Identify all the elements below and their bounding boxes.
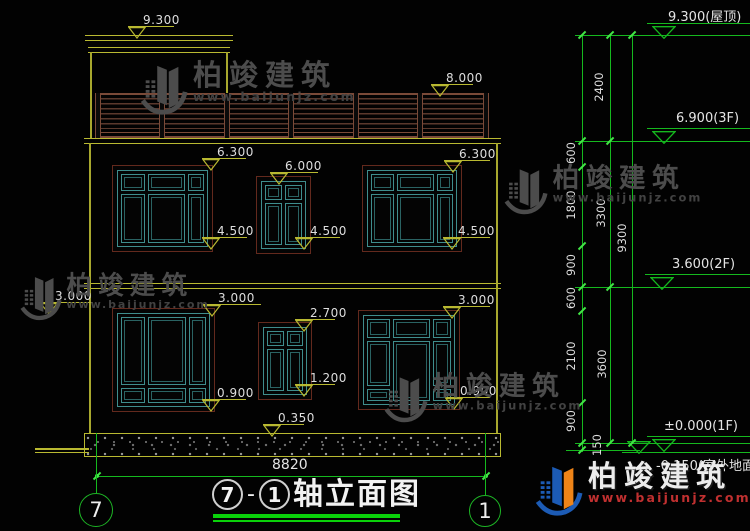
- brand-building-icon: [138, 60, 188, 116]
- window-pane: [188, 194, 204, 243]
- window-pane: [437, 174, 453, 191]
- window-pane: [265, 185, 282, 200]
- brand-logo: 柏竣建筑www.baijunjz.com: [533, 461, 750, 517]
- drawing-title: 7 - 1 轴立面图: [212, 479, 421, 510]
- brand-building-icon: [382, 372, 428, 424]
- watermark: 柏竣建筑www.baijunjz.com: [502, 164, 702, 216]
- watermark-text: 柏竣建筑: [193, 60, 356, 90]
- window-pane: [433, 319, 451, 338]
- level-label: 3.600(2F): [672, 257, 735, 272]
- dim-chain-line: [632, 35, 633, 443]
- elevation-triangle-icon: [263, 425, 281, 437]
- window-pane: [371, 194, 394, 243]
- level-triangle-icon: [652, 129, 676, 148]
- title-axis-end-circle: 1: [259, 479, 290, 510]
- watermark-text: 柏竣建筑: [433, 372, 583, 400]
- elevation-value: 3.000: [458, 293, 495, 307]
- railing-post: [95, 93, 101, 138]
- window-pane: [148, 174, 185, 191]
- dim-chain-value: 600: [564, 276, 578, 320]
- bulkhead-roof-lower-slab: [88, 47, 230, 53]
- elevation-triangle-icon: [295, 320, 313, 332]
- elevation-triangle-icon: [444, 161, 462, 173]
- watermark-text: 柏竣建筑: [553, 164, 703, 192]
- title-underline-thin: [213, 520, 400, 522]
- level-triangle-icon: [652, 24, 676, 43]
- window-pane: [189, 317, 206, 385]
- bulkhead-left-wall: [90, 52, 92, 138]
- elevation-triangle-icon: [431, 85, 449, 97]
- elevation-value: 2.700: [310, 306, 347, 320]
- dim-chain-value: 9300: [615, 216, 629, 260]
- window-pane: [267, 349, 284, 391]
- level-label: 9.300(屋顶): [668, 6, 741, 25]
- elevation-value: 4.500: [217, 224, 254, 238]
- overall-width-dim-line: [97, 476, 487, 477]
- elevation-value: 4.500: [310, 224, 347, 238]
- dim-chain-value: 2400: [592, 65, 606, 109]
- elevation-triangle-icon: [295, 238, 313, 250]
- chain-hline: [575, 287, 750, 288]
- window-2f-left: [112, 308, 215, 412]
- window-pane: [287, 331, 304, 346]
- window-pane: [121, 194, 145, 243]
- watermark-text: 柏竣建筑: [66, 272, 209, 299]
- window-pane: [367, 319, 390, 338]
- title-text: 轴立面图: [293, 480, 421, 510]
- railing-post: [483, 93, 489, 138]
- watermark-url: www.baijunjz.com: [66, 298, 209, 311]
- chain-hline: [575, 141, 750, 142]
- window-3f-left: [112, 165, 213, 252]
- elevation-value: 0.350: [278, 411, 315, 425]
- elevation-drawing-canvas: 8820 7 1 7 - 1 轴立面图 9.3008.0006.3006.000…: [0, 0, 750, 531]
- exterior-ground-line-2: [35, 452, 89, 453]
- elevation-triangle-icon: [270, 173, 288, 185]
- chain-hline: [575, 35, 750, 36]
- elevation-value: 4.500: [458, 224, 495, 238]
- axis-bubble-7: 7: [79, 493, 113, 527]
- elevation-triangle-icon: [295, 385, 313, 397]
- elevation-triangle-icon: [443, 238, 461, 250]
- elevation-value: 8.000: [446, 71, 483, 85]
- dim-chain-value: 3600: [595, 342, 609, 386]
- railing-post: [417, 93, 423, 138]
- axis-bubble-1: 1: [469, 495, 501, 527]
- axis-bubble-7-label: 7: [89, 498, 102, 522]
- window-pane: [397, 194, 434, 243]
- watermark: 柏竣建筑www.baijunjz.com: [138, 60, 356, 116]
- window-pane: [148, 317, 186, 385]
- axis-line-7: [96, 433, 97, 493]
- axis-bubble-1-label: 1: [478, 499, 491, 523]
- axis-line-1: [485, 433, 486, 495]
- dim-chain-line: [610, 35, 611, 443]
- title-axis-start-circle: 7: [212, 479, 243, 510]
- elevation-value: 9.300: [143, 13, 180, 27]
- exterior-ground-line: [35, 448, 89, 450]
- window-pane: [148, 194, 185, 243]
- window-pane: [121, 317, 145, 385]
- elevation-triangle-icon: [202, 159, 220, 171]
- level-label: ±0.000(1F): [664, 419, 738, 434]
- brand-building-icon: [502, 164, 548, 216]
- elevation-value: 1.200: [310, 371, 347, 385]
- window-pane: [397, 174, 434, 191]
- elevation-value: 0.900: [217, 386, 254, 400]
- watermark-url: www.baijunjz.com: [553, 191, 703, 205]
- window-pane: [393, 319, 430, 338]
- watermark-url: www.baijunjz.com: [193, 89, 356, 104]
- bulkhead-roof-upper-slab: [85, 35, 233, 41]
- watermark-url: www.baijunjz.com: [588, 490, 750, 505]
- window-pane: [437, 194, 453, 243]
- brand-building-icon: [18, 272, 62, 321]
- window-pane: [148, 388, 186, 403]
- level-label: 6.900(3F): [676, 111, 739, 126]
- elevation-value: 6.300: [459, 147, 496, 161]
- watermark-url: www.baijunjz.com: [433, 399, 583, 413]
- watermark-text: 柏竣建筑: [588, 461, 750, 491]
- level-triangle-icon: [650, 275, 674, 294]
- elevation-triangle-icon: [128, 27, 146, 39]
- window-pane: [188, 174, 204, 191]
- plinth-hatched-base: [84, 433, 501, 457]
- elevation-value: 6.000: [285, 159, 322, 173]
- elevation-value: 3.000: [218, 291, 255, 305]
- elevation-value: 6.300: [217, 145, 254, 159]
- window-pane: [267, 331, 284, 346]
- window-pane: [121, 174, 145, 191]
- title-dash: -: [247, 482, 255, 507]
- watermark: 柏竣建筑www.baijunjz.com: [382, 372, 582, 424]
- window-pane: [285, 185, 302, 200]
- window-pane: [371, 174, 394, 191]
- elevation-triangle-icon: [202, 400, 220, 412]
- overall-width-label: 8820: [272, 457, 308, 473]
- title-underline-thick: [213, 514, 400, 518]
- elevation-triangle-icon: [202, 238, 220, 250]
- watermark: 柏竣建筑www.baijunjz.com: [18, 272, 210, 321]
- elevation-triangle-icon: [443, 307, 461, 319]
- terrace-floor-slab: [84, 138, 501, 144]
- brand-building-icon: [533, 461, 583, 517]
- window-pane: [265, 203, 282, 245]
- window-pane: [121, 388, 145, 403]
